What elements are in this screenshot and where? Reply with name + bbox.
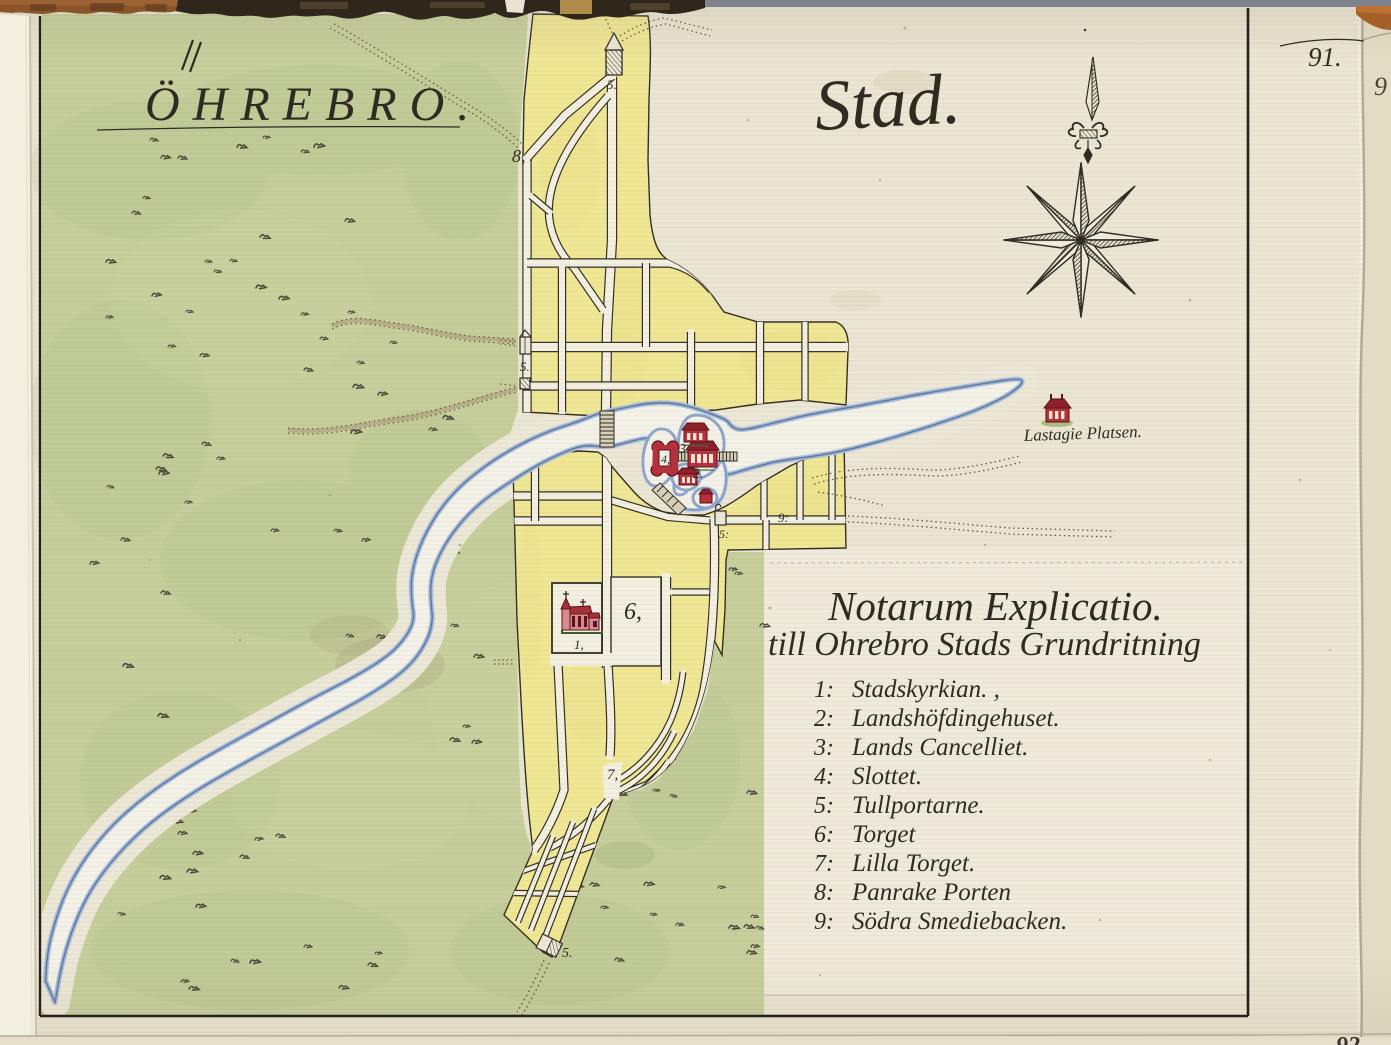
svg-text:Torget: Torget [852,821,917,848]
svg-text:2.: 2. [693,467,704,482]
svg-text:3.: 3. [678,442,690,457]
svg-text:5.: 5. [607,77,617,92]
svg-text:1:: 1: [814,677,834,703]
svg-text:2:: 2: [814,706,834,732]
svg-text:Stadskyrkian. ,: Stadskyrkian. , [852,676,1000,703]
svg-text:8,: 8, [512,146,526,166]
svg-text:7:: 7: [814,851,834,877]
svg-text:92: 92 [1336,1033,1360,1045]
svg-text:Notarum Explicatio.: Notarum Explicatio. [827,583,1163,629]
svg-text:91.: 91. [1308,42,1342,72]
svg-text:3:: 3: [813,735,834,761]
svg-text:Södra Smediebacken.: Södra Smediebacken. [852,908,1067,935]
svg-text:Slottet.: Slottet. [852,763,922,790]
svg-text:Panrake Porten: Panrake Porten [851,879,1011,906]
svg-text:9:: 9: [778,510,789,525]
svg-text:5:: 5: [814,793,834,819]
svg-text:4:: 4: [814,764,834,790]
svg-text:6:: 6: [814,822,834,848]
svg-text:6,: 6, [624,599,642,625]
svg-text:ÖHREBRO.: ÖHREBRO. [145,78,482,131]
svg-text:Lilla Torget.: Lilla Torget. [851,850,975,877]
svg-text:Landshöfdingehuset.: Landshöfdingehuset. [851,705,1060,732]
svg-text:9: 9 [1374,72,1387,101]
svg-text:5.: 5. [520,359,530,374]
svg-text:9:: 9: [814,909,834,935]
svg-text:Tullportarne.: Tullportarne. [852,792,985,819]
svg-text:4,: 4, [661,452,670,466]
svg-text:7,: 7, [607,767,618,783]
svg-text:5:: 5: [719,527,729,541]
svg-text:5.: 5. [562,946,573,961]
svg-text:Lands Cancelliet.: Lands Cancelliet. [851,734,1028,761]
svg-text:1,: 1, [574,637,584,652]
svg-text:8:: 8: [814,880,834,906]
svg-text:till Ohrebro Stads Grundritnin: till Ohrebro Stads Grundritning [768,626,1201,663]
svg-text:Stad.: Stad. [813,58,963,146]
